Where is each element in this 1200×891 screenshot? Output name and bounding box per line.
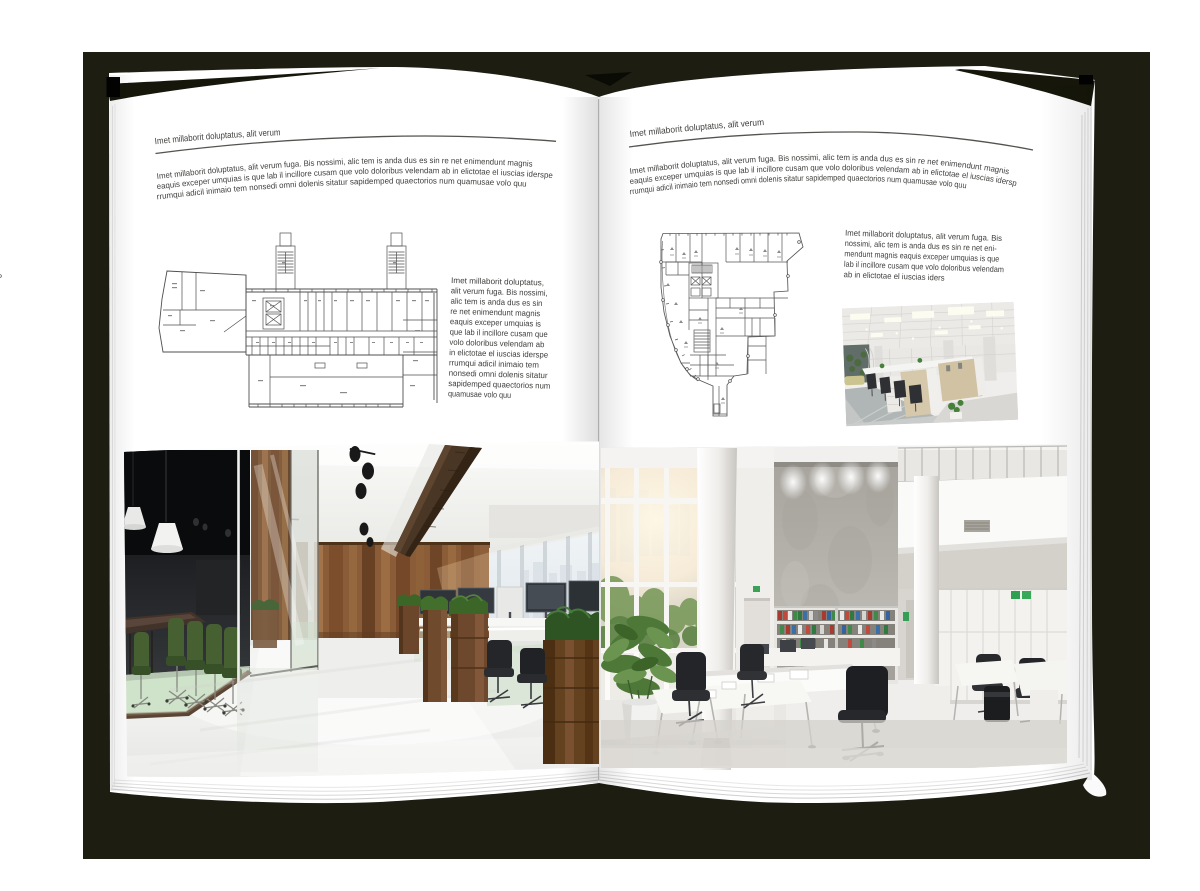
svg-text:quamusae volo quu: quamusae volo quu — [448, 389, 512, 400]
